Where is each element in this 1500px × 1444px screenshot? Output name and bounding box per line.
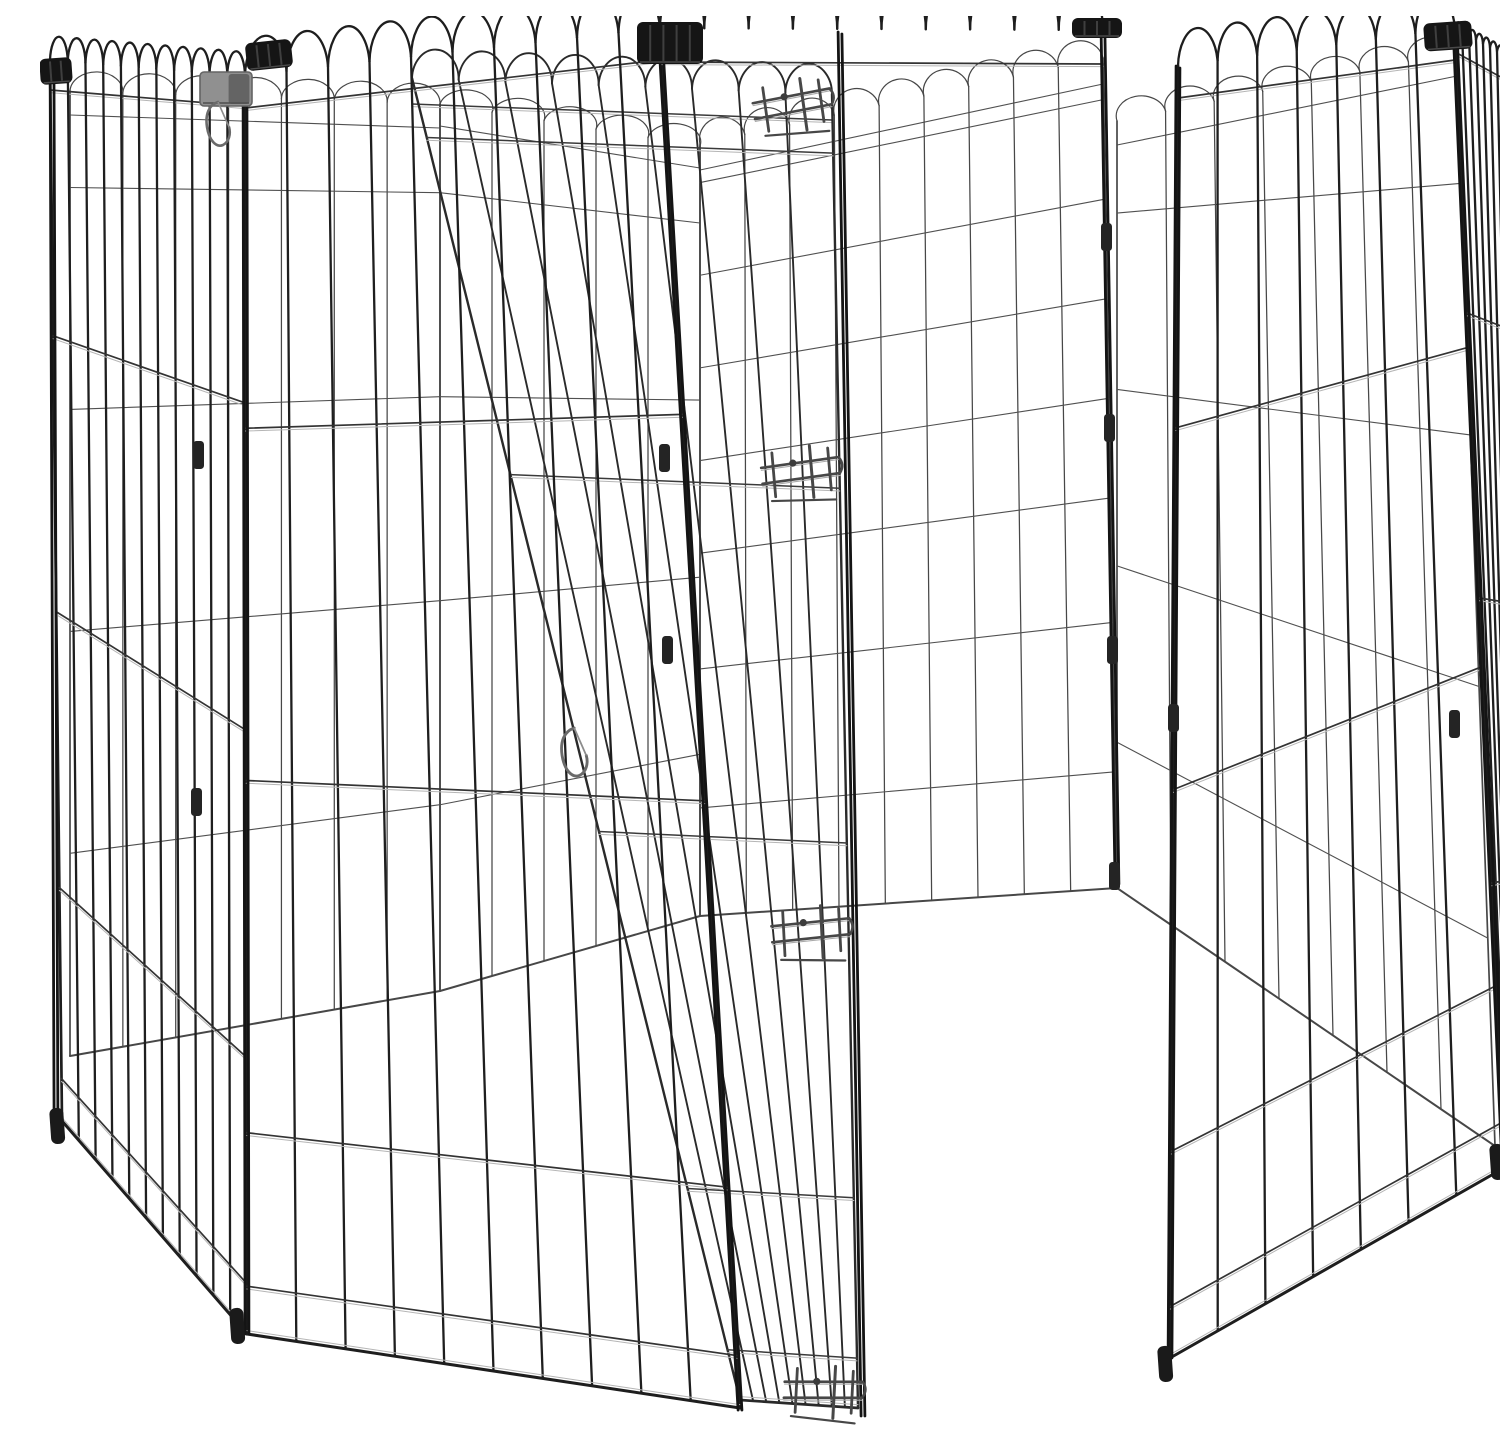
post-door-hinge <box>838 32 865 1416</box>
joint-sleeve <box>1107 636 1118 664</box>
hinge-clip <box>200 72 252 106</box>
joint-sleeve <box>193 441 204 469</box>
exercise-pen-illustration <box>40 16 1500 1428</box>
panel-back-right-inner <box>699 41 1117 916</box>
joint-sleeve <box>1101 223 1112 251</box>
post-left-corner <box>50 60 58 1118</box>
joint-sleeve <box>662 636 673 664</box>
top-rim-doorway <box>660 16 1103 67</box>
corner-clip <box>1423 20 1473 51</box>
product-photo <box>40 16 1500 1428</box>
joint-sleeve <box>1109 862 1120 890</box>
door-latch-bottom <box>783 1364 867 1424</box>
panel-side-left <box>50 37 247 1334</box>
joint-sleeve <box>1168 704 1179 732</box>
corner-clip <box>40 57 73 85</box>
joint-sleeve <box>1449 710 1460 738</box>
foot-cap <box>229 1308 245 1345</box>
corner-clip <box>245 39 294 72</box>
joint-sleeve <box>659 444 670 472</box>
foot-cap <box>49 1108 65 1145</box>
joint-sleeve <box>1104 414 1115 442</box>
corner-clip <box>637 22 703 64</box>
corner-clip <box>1072 18 1122 38</box>
panel-front-right <box>1170 16 1500 1358</box>
panel-door-open <box>412 50 858 1408</box>
joint-sleeve <box>191 788 202 816</box>
foot-cap <box>1157 1346 1173 1383</box>
door-latch-lower <box>770 904 854 964</box>
